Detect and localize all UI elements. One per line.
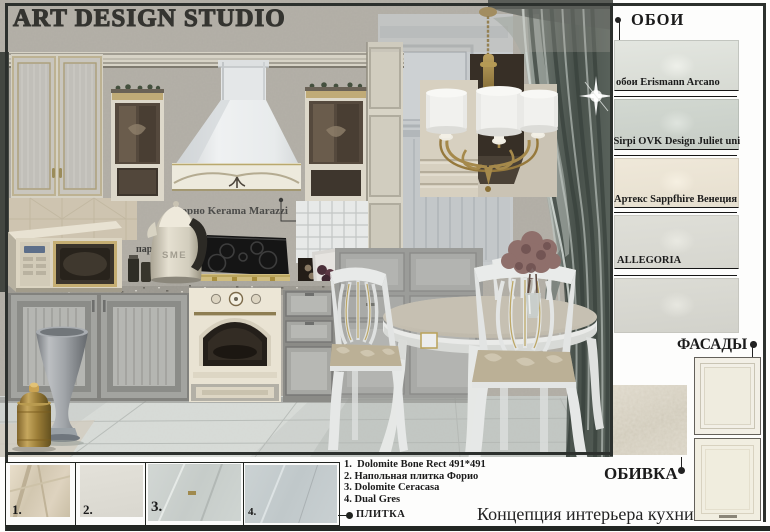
svg-text:Форно Kerama Marazzi: Форно Kerama Marazzi bbox=[172, 205, 288, 217]
svg-text:SME: SME bbox=[162, 250, 187, 261]
